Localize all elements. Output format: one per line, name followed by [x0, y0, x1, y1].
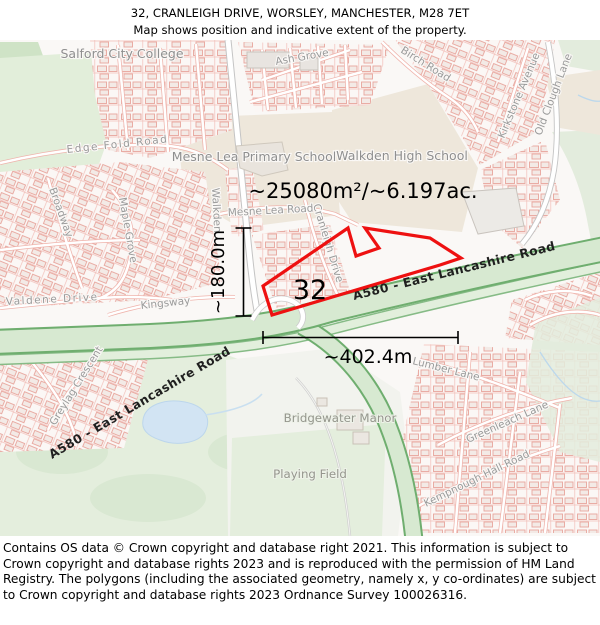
map-canvas: Salford City College Edge Fold Road Ash … — [0, 40, 600, 536]
width-dimension-label: ~402.4m — [324, 346, 413, 368]
label-walkden-road: Walkden — [209, 188, 223, 234]
height-dimension-label: ~180.0m — [208, 230, 229, 314]
label-salford-city-college: Salford City College — [60, 46, 183, 61]
area-label: ~25080m²/~6.197ac. — [248, 179, 477, 203]
plot-number-label: 32 — [293, 275, 327, 306]
label-playing-field: Playing Field — [273, 467, 347, 481]
page-subtitle: Map shows position and indicative extent… — [0, 22, 600, 38]
map-container: Salford City College Edge Fold Road Ash … — [0, 40, 600, 536]
map-header: 32, CRANLEIGH DRIVE, WORSLEY, MANCHESTER… — [0, 0, 600, 40]
copyright-footer: Contains OS data © Crown copyright and d… — [0, 536, 600, 603]
label-bridgewater-manor: Bridgewater Manor — [284, 411, 397, 425]
label-walkden-high-school: Walkden High School — [336, 148, 468, 163]
label-mesne-lea-primary-school: Mesne Lea Primary School — [172, 149, 336, 164]
page-title: 32, CRANLEIGH DRIVE, WORSLEY, MANCHESTER… — [0, 5, 600, 22]
